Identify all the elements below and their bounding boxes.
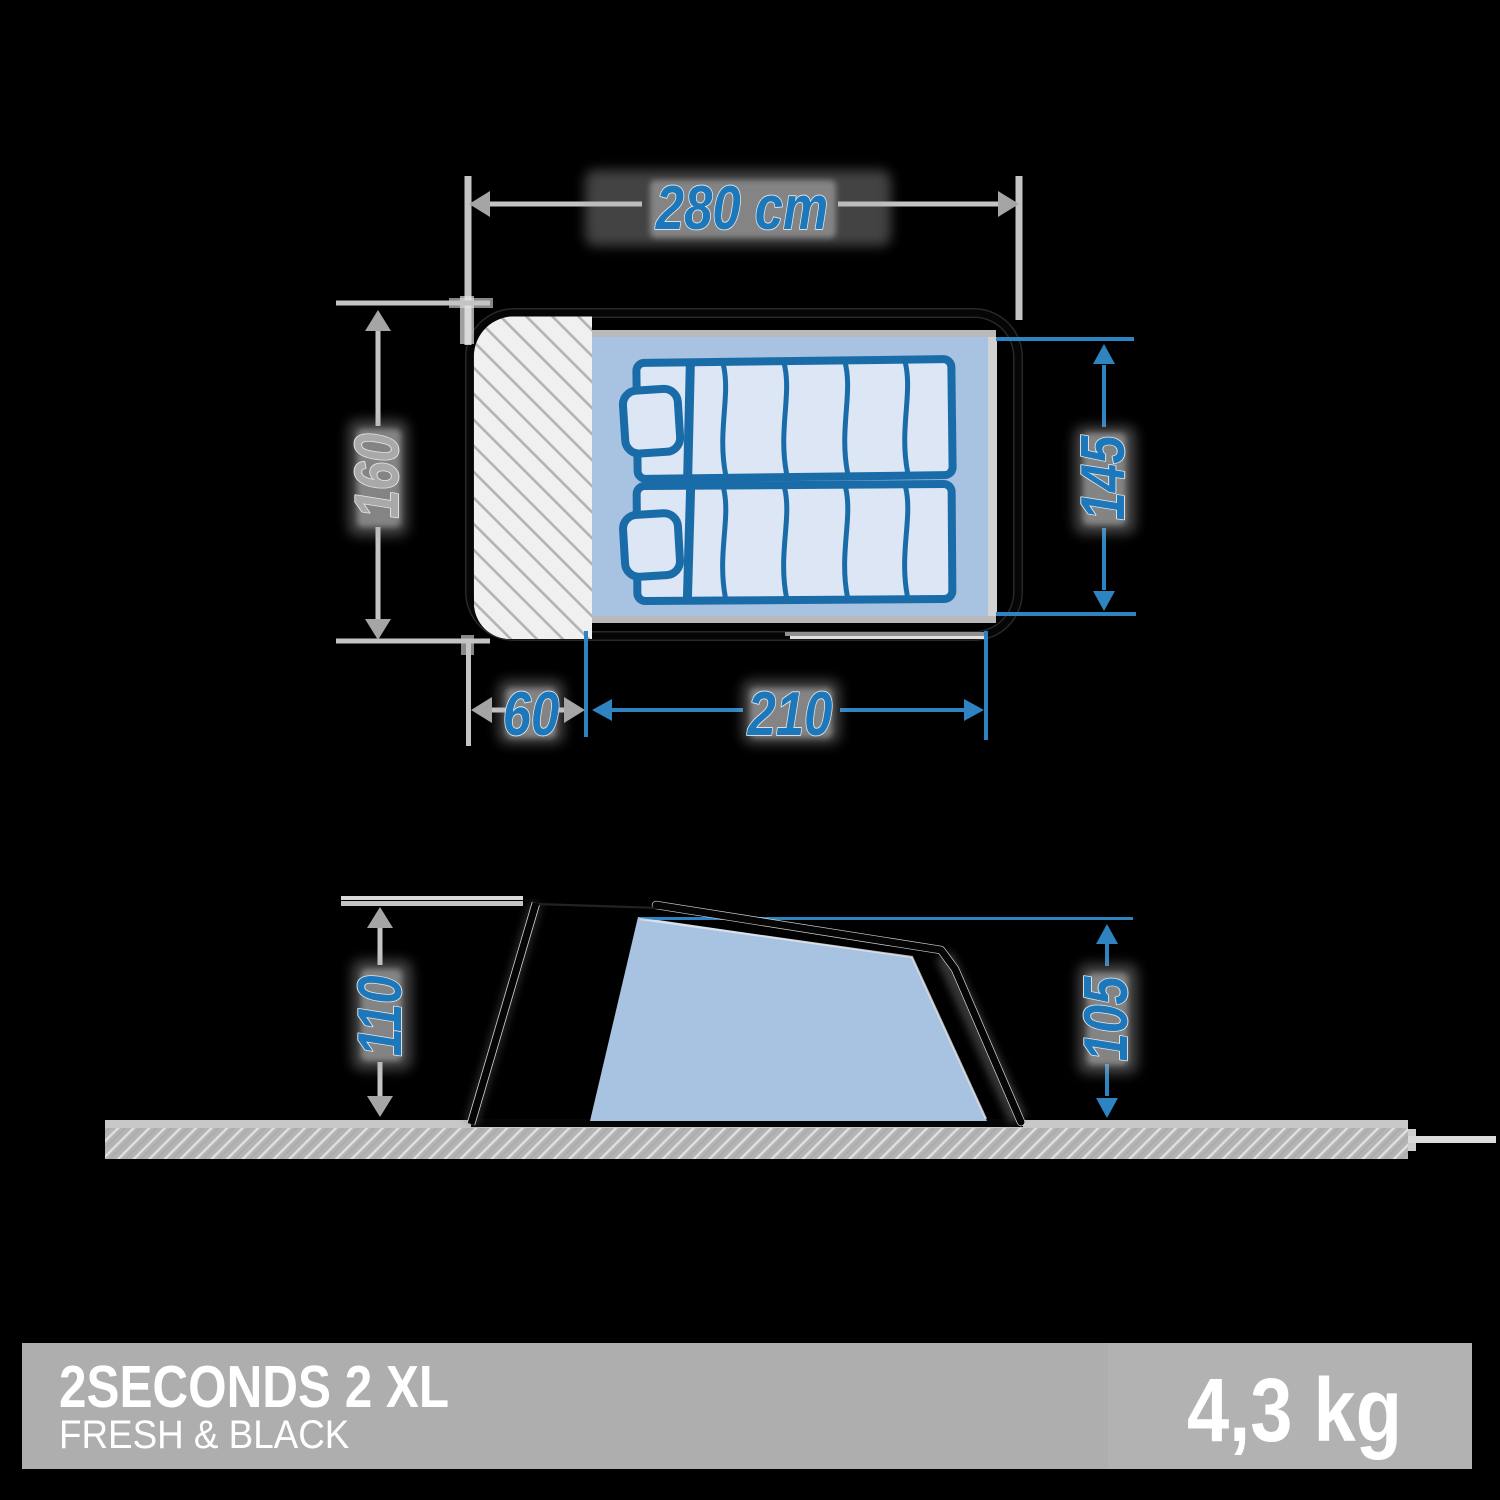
svg-text:4,3 kg: 4,3 kg <box>1187 1360 1402 1461</box>
svg-text:280 cm: 280 cm <box>655 174 828 243</box>
svg-text:145: 145 <box>1070 434 1139 520</box>
svg-text:60: 60 <box>503 680 560 749</box>
svg-text:2SECONDS 2 XL: 2SECONDS 2 XL <box>59 1354 449 1420</box>
svg-text:110: 110 <box>347 975 416 1056</box>
svg-text:105: 105 <box>1073 975 1142 1061</box>
svg-text:210: 210 <box>747 680 833 749</box>
svg-text:FRESH & BLACK: FRESH & BLACK <box>59 1413 350 1458</box>
svg-text:160: 160 <box>344 434 413 519</box>
